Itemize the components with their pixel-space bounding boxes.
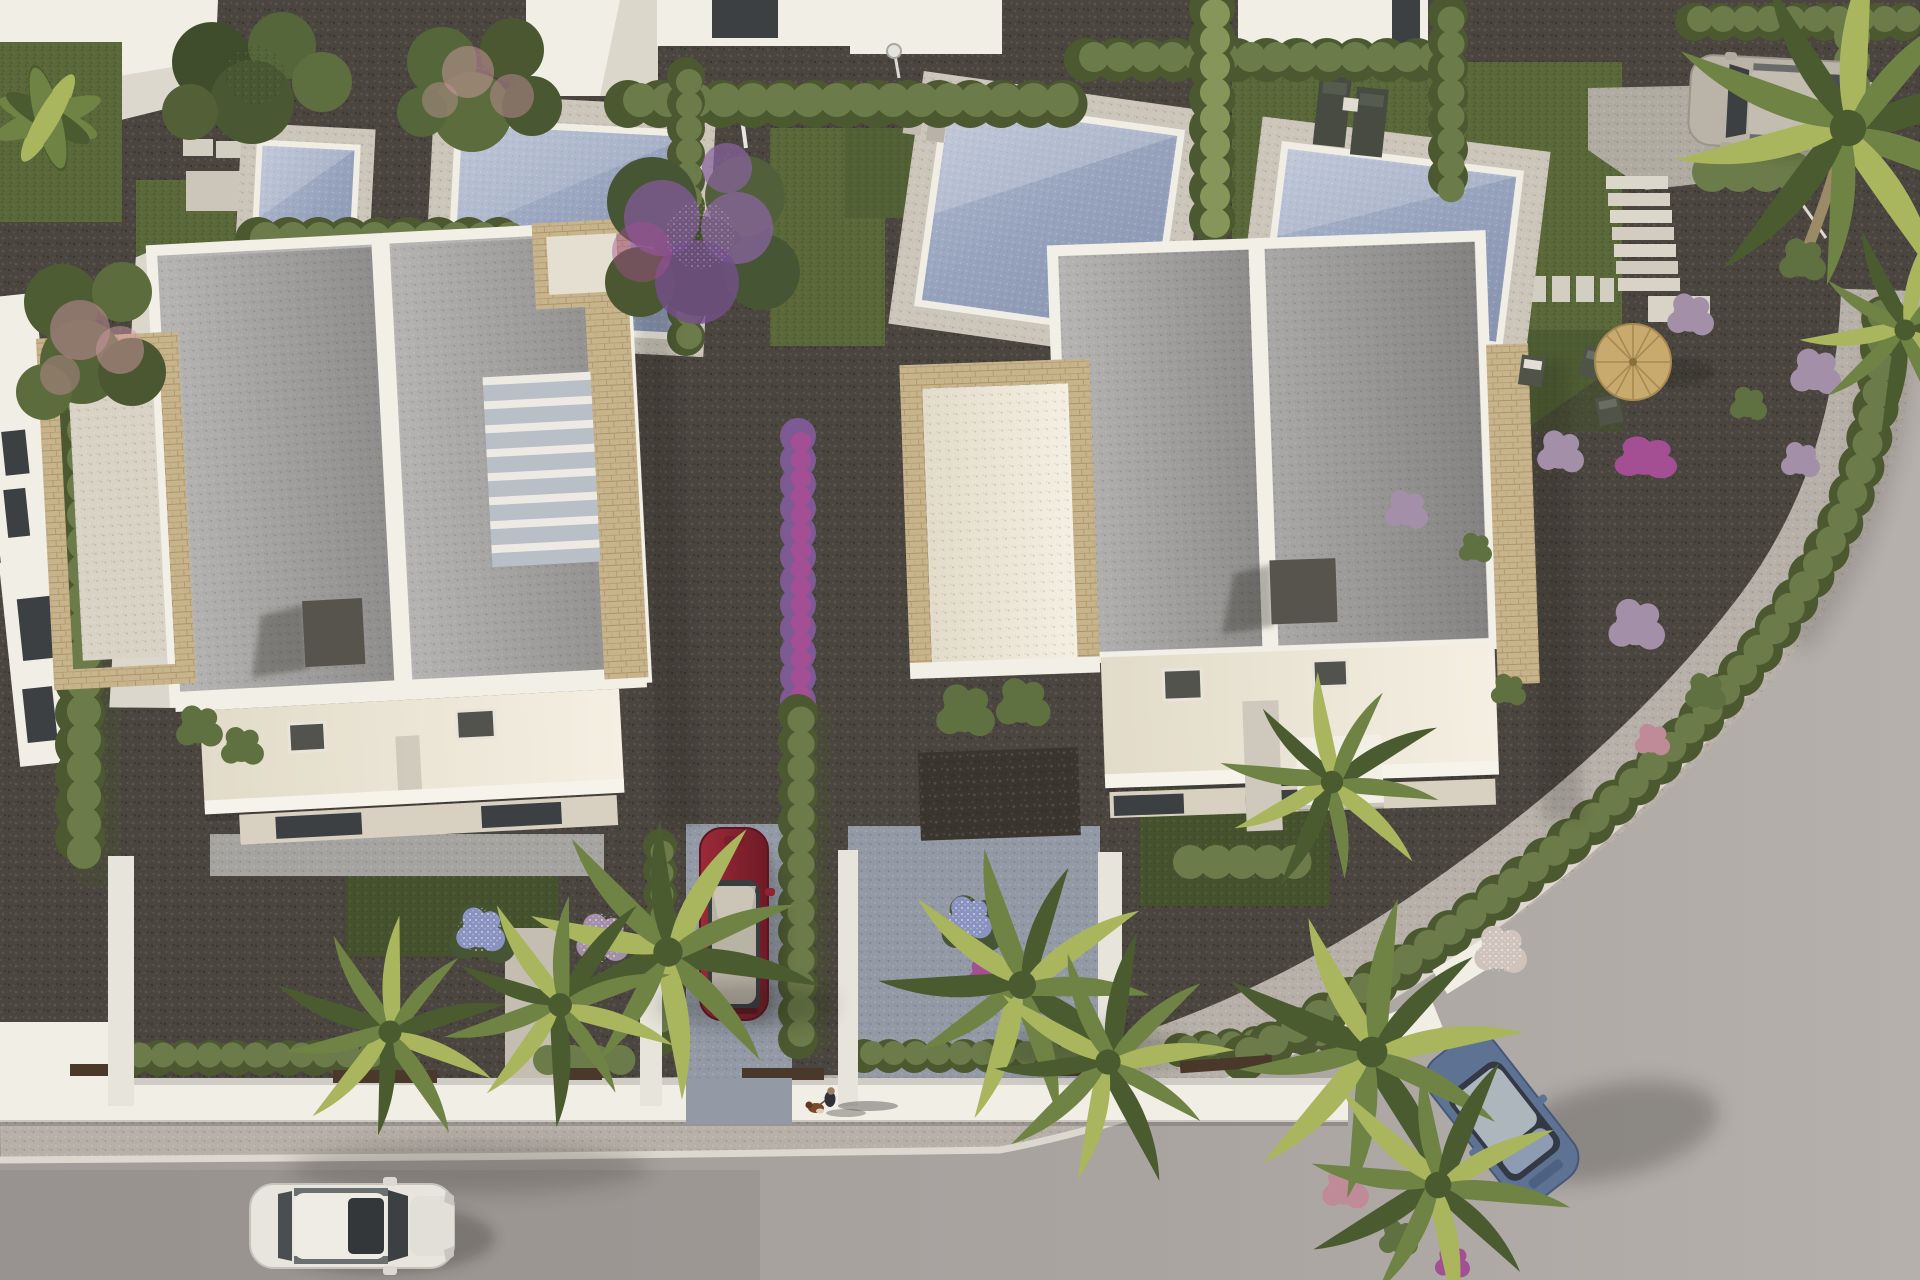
skylight: [1163, 669, 1202, 700]
dog-head: [806, 1102, 813, 1109]
person-head: [827, 1087, 835, 1095]
dog-shadow: [826, 1109, 866, 1117]
poolside-chair: [1518, 354, 1546, 387]
villa-left-chimney: [302, 598, 365, 667]
villa-right-glazing-1: [1114, 794, 1185, 816]
villa-right-stone-terrace: [899, 359, 1105, 841]
car-white-rear-window: [278, 1191, 292, 1261]
car-white-sunroof: [348, 1198, 384, 1254]
purple-tree: [605, 143, 800, 324]
villa-right-chimney: [1269, 558, 1337, 624]
skylight: [456, 709, 495, 739]
car-white-mirror: [383, 1266, 397, 1275]
side-wall-3: [838, 850, 858, 1106]
building-top-b-window: [712, 0, 778, 38]
villa-left-glazing-1: [275, 812, 362, 838]
scene-canvas: [0, 0, 1920, 1280]
car-white-mirror: [383, 1177, 397, 1186]
building-top-c: [850, 0, 1002, 54]
villa-left-glazing-2: [481, 802, 562, 828]
car-white-windshield: [388, 1190, 408, 1262]
side-table: [1342, 97, 1358, 111]
skylight: [288, 722, 325, 752]
aerial-render: [0, 0, 1920, 1280]
car-red-mirror: [765, 888, 775, 896]
side-wall-1: [108, 856, 134, 1106]
driveway-opening: [686, 1078, 792, 1124]
